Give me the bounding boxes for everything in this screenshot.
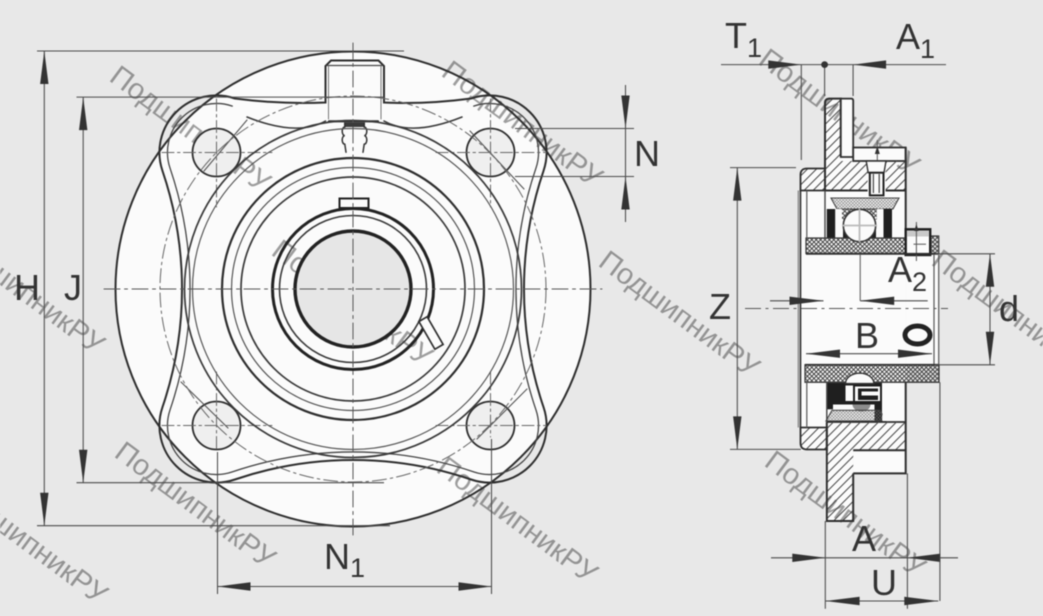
- svg-text:J: J: [64, 267, 82, 308]
- svg-text:U: U: [871, 562, 897, 603]
- svg-text:Z: Z: [709, 286, 731, 327]
- svg-text:A: A: [852, 518, 876, 559]
- svg-text:d: d: [999, 288, 1019, 329]
- svg-text:H: H: [14, 267, 40, 308]
- svg-text:B: B: [855, 315, 879, 356]
- svg-text:N: N: [634, 133, 660, 174]
